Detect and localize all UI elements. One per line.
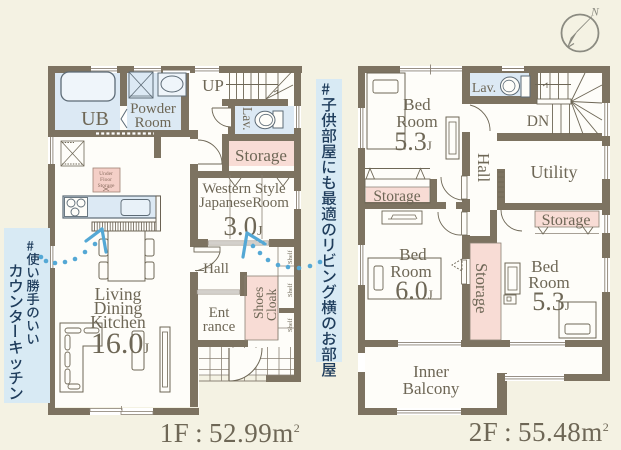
svg-text:Hall: Hall [474,153,493,183]
svg-text:2F : 55.48m2: 2F : 55.48m2 [469,417,610,447]
svg-text:5.3J: 5.3J [532,287,570,316]
svg-text:Lav.: Lav. [240,107,255,131]
svg-text:Utility: Utility [530,162,577,182]
svg-text:Storage: Storage [542,212,591,229]
svg-text:Lav.: Lav. [472,81,496,96]
svg-text:UB: UB [81,108,109,130]
svg-text:5.3J: 5.3J [394,127,432,156]
svg-text:1F : 52.99m2: 1F : 52.99m2 [160,418,301,448]
svg-text:rance: rance [203,319,236,335]
svg-text:Balcony: Balcony [403,379,460,398]
svg-text:16.0J: 16.0J [91,327,150,360]
svg-text:Storage: Storage [472,263,491,313]
svg-text:6.0J: 6.0J [395,276,433,305]
svg-text:Shelf: Shelf [287,249,294,264]
svg-text:DN: DN [527,113,549,130]
svg-text:JapaneseRoom: JapaneseRoom [199,195,289,211]
svg-text:Shelf: Shelf [287,317,294,332]
svg-text:N: N [590,7,600,19]
svg-text:Storage: Storage [373,188,420,205]
svg-text:Storage: Storage [98,183,115,189]
svg-text:UP: UP [202,76,224,95]
svg-text:Room: Room [135,115,172,131]
svg-text:Cloak: Cloak [264,289,279,321]
svg-text:Storage: Storage [235,146,287,165]
svg-text:Shelf: Shelf [287,282,294,297]
svg-text:Hall: Hall [203,261,229,277]
